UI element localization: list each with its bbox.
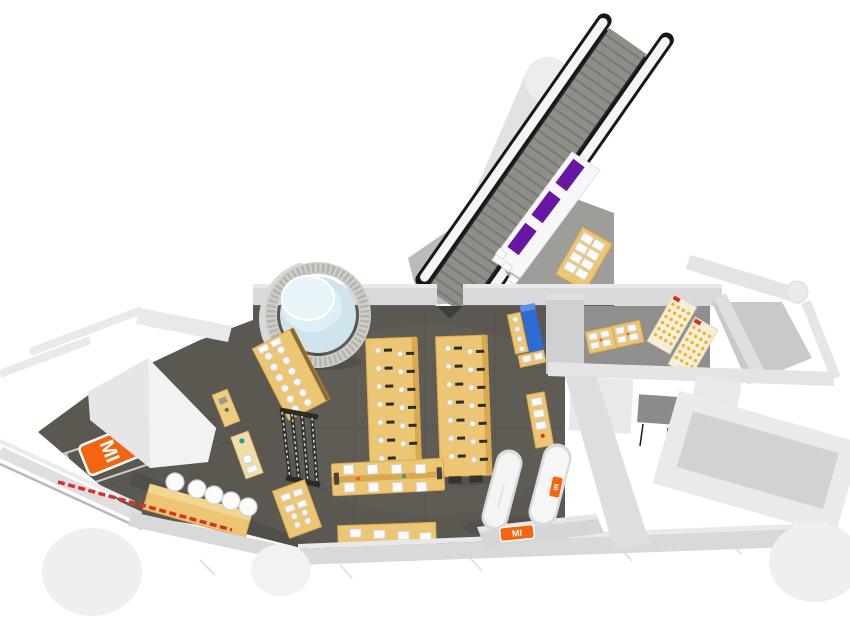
lower-right-room [652,391,850,536]
demo-table-middle [331,458,445,496]
svg-text:MI: MI [512,528,523,539]
upper-right-room [688,262,836,384]
floorplan-canvas: Mi Store — 3D bird's-eye floor plan rend… [0,0,850,638]
cashier-counter-2: MI [543,458,563,512]
cashier-counter-1 [495,463,509,517]
mi-logo-cashier-front: MI [499,524,534,541]
gray-column [546,294,584,374]
store-floorplan-render: Mi Store — 3D bird's-eye floor plan rend… [0,0,850,638]
